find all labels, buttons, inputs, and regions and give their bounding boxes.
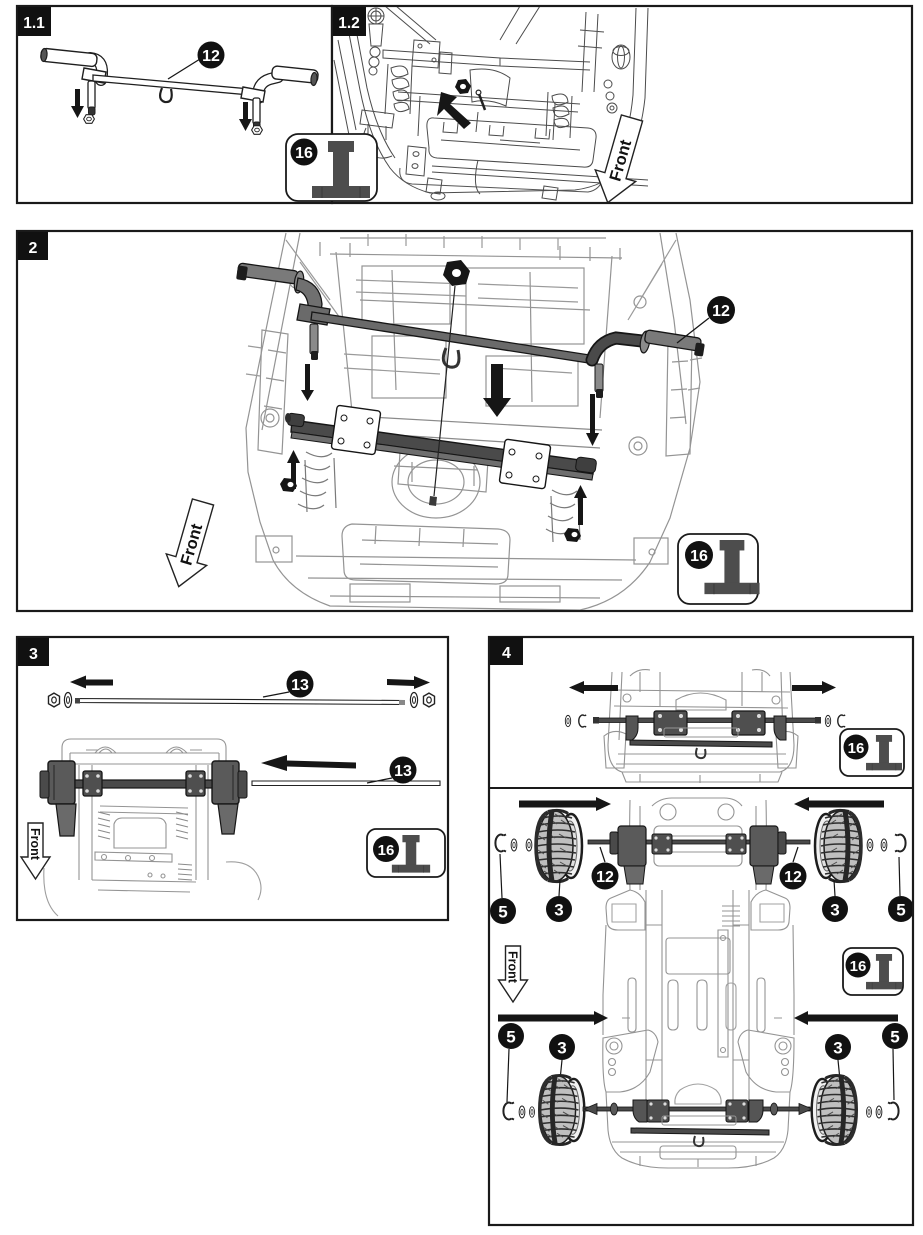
svg-text:3: 3	[833, 1039, 842, 1058]
svg-text:1.2: 1.2	[338, 15, 360, 32]
svg-text:12: 12	[596, 869, 614, 886]
svg-text:12: 12	[712, 303, 730, 320]
svg-text:16: 16	[378, 842, 395, 859]
svg-text:3: 3	[29, 646, 38, 663]
svg-text:12: 12	[202, 48, 220, 65]
svg-text:1.1: 1.1	[23, 15, 45, 32]
svg-text:4: 4	[502, 645, 511, 662]
svg-text:3: 3	[554, 901, 563, 920]
svg-text:16: 16	[295, 145, 313, 162]
svg-text:5: 5	[890, 1028, 899, 1047]
svg-text:3: 3	[830, 901, 839, 920]
svg-text:2: 2	[29, 240, 38, 257]
svg-text:13: 13	[394, 763, 412, 780]
svg-text:3: 3	[557, 1039, 566, 1058]
svg-text:12: 12	[784, 869, 802, 886]
svg-text:5: 5	[498, 903, 507, 922]
svg-text:13: 13	[291, 677, 309, 694]
svg-text:16: 16	[690, 548, 708, 565]
svg-text:5: 5	[506, 1028, 515, 1047]
svg-text:16: 16	[848, 740, 865, 757]
svg-text:16: 16	[850, 958, 867, 975]
svg-text:5: 5	[896, 901, 905, 920]
